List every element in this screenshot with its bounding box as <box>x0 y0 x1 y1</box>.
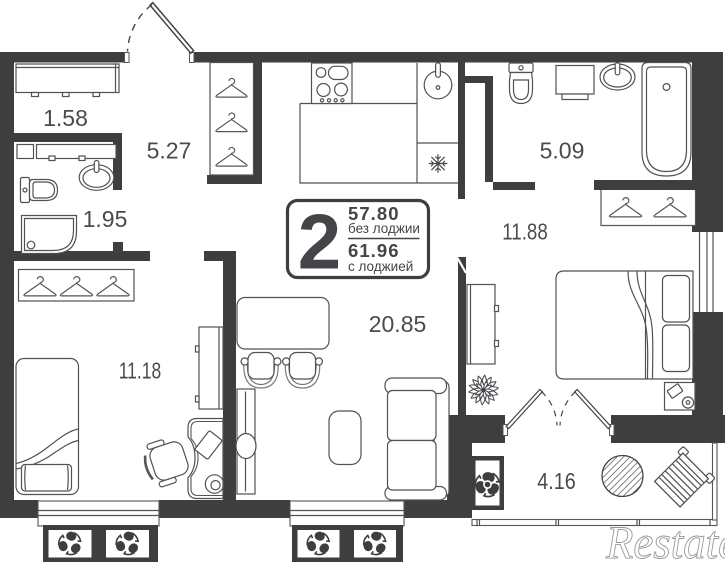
svg-text:11.18: 11.18 <box>119 358 162 384</box>
svg-text:5.27: 5.27 <box>147 138 192 164</box>
svg-text:11.88: 11.88 <box>502 219 548 245</box>
svg-text:1.95: 1.95 <box>83 206 128 232</box>
svg-text:2: 2 <box>298 197 341 285</box>
svg-text:20.85: 20.85 <box>369 311 427 337</box>
svg-text:5.09: 5.09 <box>540 138 585 164</box>
svg-text:без лоджии: без лоджии <box>348 221 420 236</box>
svg-text:с лоджией: с лоджией <box>348 259 413 274</box>
svg-text:1.58: 1.58 <box>43 105 88 131</box>
svg-text:4.16: 4.16 <box>537 468 576 494</box>
svg-text:Restate: Restate <box>605 517 725 564</box>
svg-text:61.96: 61.96 <box>348 240 399 261</box>
